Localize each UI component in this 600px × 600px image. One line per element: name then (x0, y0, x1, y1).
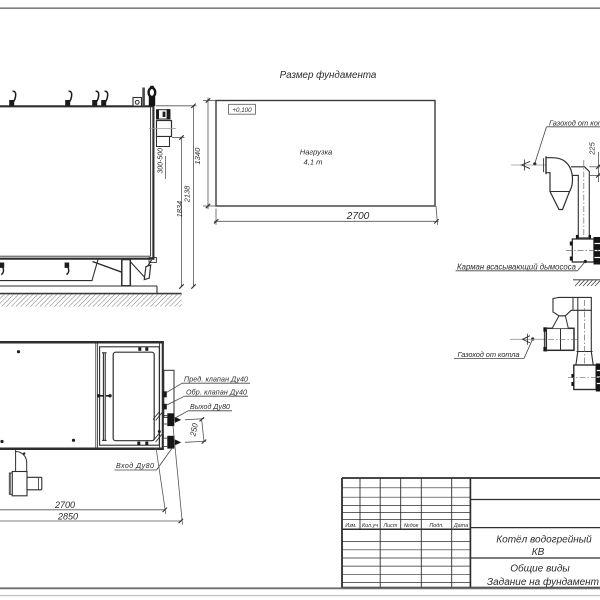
svg-text:2138: 2138 (183, 185, 192, 203)
svg-text:Кол.уч: Кол.уч (362, 523, 378, 529)
svg-text:КВ: КВ (532, 547, 545, 558)
svg-text:+0,100: +0,100 (232, 107, 252, 114)
svg-text:Обр. клапан Ду40: Обр. клапан Ду40 (186, 388, 247, 396)
svg-text:4,1 т: 4,1 т (304, 158, 323, 167)
svg-text:Нагрузка: Нагрузка (300, 148, 333, 157)
svg-text:Изм.: Изм. (345, 523, 357, 529)
svg-text:Пред. клапан Ду40: Пред. клапан Ду40 (184, 375, 248, 383)
svg-text:2850: 2850 (57, 511, 78, 521)
svg-text:1340: 1340 (193, 147, 202, 165)
svg-text:2700: 2700 (346, 211, 370, 222)
svg-text:Задание на фундамент: Задание на фундамент (487, 576, 599, 588)
svg-text:300-500: 300-500 (158, 148, 165, 174)
svg-text:Газоход от кот: Газоход от кот (549, 118, 600, 127)
svg-text:250: 250 (188, 422, 200, 438)
svg-text:Дата: Дата (453, 523, 468, 529)
svg-text:Вход Ду80: Вход Ду80 (116, 462, 154, 470)
svg-text:1834: 1834 (175, 201, 184, 217)
svg-text:225: 225 (587, 141, 596, 155)
svg-text:Выход Ду80: Выход Ду80 (190, 403, 230, 411)
svg-text:Карман всасывающий дымососа: Карман всасывающий дымососа (457, 263, 577, 272)
svg-text:Общие виды: Общие виды (510, 563, 570, 575)
svg-text:№док: №док (404, 523, 419, 529)
svg-text:Подп.: Подп. (429, 523, 443, 529)
svg-text:Газоход от котла: Газоход от котла (458, 350, 520, 359)
svg-text:Размер фундамента: Размер фундамента (280, 70, 377, 81)
svg-text:Котёл водогрейный: Котёл водогрейный (496, 535, 592, 546)
svg-text:Лист: Лист (382, 523, 397, 529)
svg-text:2700: 2700 (54, 500, 75, 510)
